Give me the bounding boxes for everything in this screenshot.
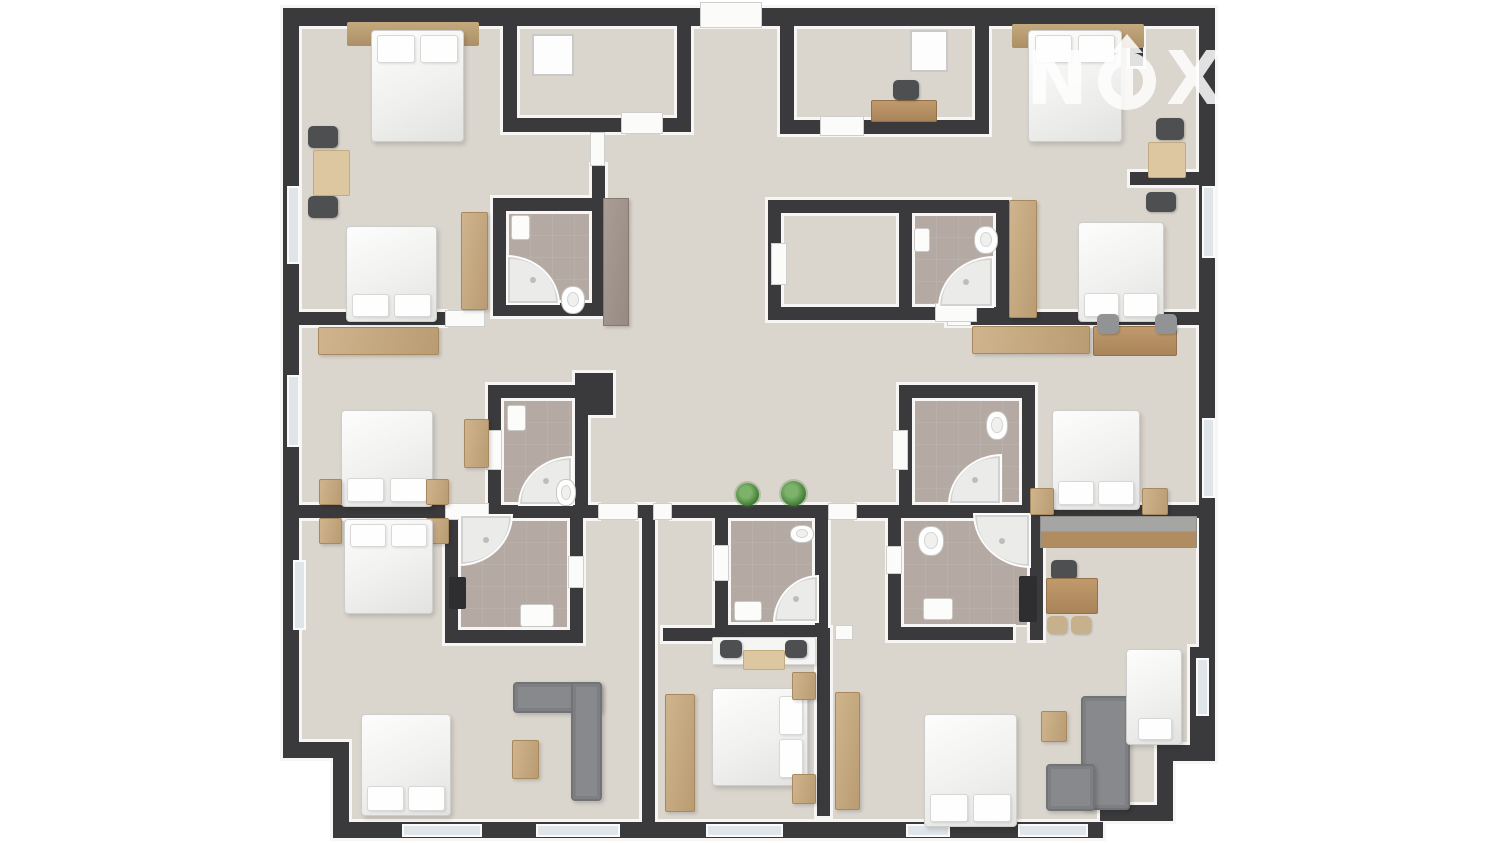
- door-opening: [653, 503, 672, 520]
- wall: [899, 385, 1035, 398]
- appliance: [449, 577, 466, 609]
- bed: [346, 226, 437, 322]
- wall: [817, 628, 830, 816]
- nightstand: [426, 479, 449, 505]
- wall: [888, 627, 1013, 640]
- window: [1202, 186, 1215, 258]
- wall: [488, 385, 588, 398]
- mat: [532, 34, 574, 76]
- floor-plan: N X T: [0, 0, 1500, 843]
- wardrobe: [835, 692, 860, 810]
- door-opening: [892, 430, 908, 470]
- bed: [371, 30, 464, 142]
- window: [287, 186, 300, 264]
- wall: [445, 630, 583, 643]
- plant: [781, 481, 806, 506]
- window: [1202, 418, 1215, 498]
- wardrobe: [665, 694, 695, 812]
- chair-dark: [308, 126, 338, 148]
- chair-gray: [1155, 314, 1177, 334]
- toilet: [561, 286, 585, 314]
- chair-dark: [1146, 192, 1176, 212]
- arrow-stem: [1121, 51, 1133, 101]
- wardrobe: [464, 419, 489, 468]
- window: [536, 824, 620, 837]
- table: [1148, 142, 1186, 178]
- nightstand: [792, 672, 816, 700]
- wall: [493, 198, 605, 211]
- wall: [503, 8, 517, 132]
- sofa: [571, 682, 602, 801]
- chair-dark: [308, 196, 338, 218]
- bed: [924, 714, 1017, 827]
- nightstand: [319, 479, 342, 505]
- door-opening: [713, 545, 729, 581]
- wall: [899, 200, 912, 320]
- wall: [996, 200, 1009, 320]
- toilet: [974, 226, 998, 254]
- chair-dark: [1051, 560, 1077, 580]
- wall: [899, 200, 1009, 213]
- window: [706, 824, 783, 837]
- compass-arrow-icon: [1098, 52, 1156, 110]
- nightstand: [1030, 488, 1054, 515]
- window: [1196, 658, 1209, 716]
- wall: [780, 8, 794, 134]
- sideboard: [318, 327, 439, 355]
- chair-gray: [1097, 314, 1119, 334]
- sofa: [1046, 764, 1095, 811]
- sink: [507, 405, 526, 431]
- door-opening: [598, 503, 638, 520]
- wall: [333, 742, 349, 832]
- wall: [592, 165, 605, 198]
- door-opening: [835, 625, 853, 640]
- next-logo-watermark: N X T: [1026, 42, 1283, 116]
- counter: [1040, 516, 1197, 548]
- window: [287, 375, 300, 447]
- appliance: [1019, 576, 1037, 622]
- bed: [1052, 410, 1140, 510]
- wall: [768, 307, 899, 320]
- sink: [923, 598, 953, 620]
- wall: [780, 120, 985, 134]
- wall: [638, 505, 653, 518]
- wall: [575, 373, 613, 415]
- wall: [672, 505, 715, 518]
- logo-letter-t: T: [1233, 42, 1283, 116]
- logo-letter-n: N: [1026, 42, 1088, 116]
- wall: [715, 625, 828, 637]
- desk-wood: [1046, 578, 1098, 614]
- chair-dark: [785, 640, 807, 658]
- desk-wood: [871, 100, 937, 122]
- wall: [493, 198, 506, 316]
- bed: [344, 519, 433, 614]
- door-opening: [886, 546, 902, 574]
- chair-tan: [1047, 616, 1067, 634]
- chair-tan: [1071, 616, 1091, 634]
- board: [910, 30, 948, 72]
- wall: [663, 628, 717, 641]
- rug: [743, 650, 785, 670]
- dresser: [603, 198, 629, 326]
- toilet: [986, 411, 1008, 440]
- wall: [1157, 745, 1173, 813]
- ctable: [512, 740, 539, 779]
- window: [293, 560, 306, 630]
- wall: [975, 8, 989, 134]
- nightstand: [792, 774, 816, 804]
- toilet: [790, 525, 814, 543]
- door-opening: [820, 116, 864, 136]
- bed: [361, 714, 451, 816]
- sink: [511, 215, 530, 240]
- wall: [503, 118, 623, 132]
- door-opening: [590, 132, 605, 166]
- window: [1018, 824, 1088, 837]
- wardrobe: [461, 212, 488, 310]
- logo-letter-x: X: [1166, 42, 1223, 116]
- toilet: [556, 479, 576, 506]
- wall: [677, 8, 691, 132]
- sink: [520, 604, 554, 627]
- bed: [1126, 649, 1182, 745]
- bed: [1078, 222, 1164, 322]
- nightstand: [1142, 488, 1168, 515]
- wardrobe: [1009, 200, 1037, 318]
- window: [402, 824, 482, 837]
- toilet: [918, 526, 944, 556]
- wall: [1022, 385, 1035, 505]
- sink: [914, 228, 930, 252]
- table: [313, 150, 350, 196]
- chair-dark: [893, 80, 919, 100]
- nightstand: [1041, 711, 1067, 742]
- door-opening: [828, 503, 857, 520]
- door-opening: [621, 112, 663, 134]
- nightstand: [319, 518, 342, 544]
- chair-dark: [720, 640, 742, 658]
- wall: [768, 200, 899, 213]
- door-opening: [700, 2, 762, 28]
- sideboard: [972, 326, 1090, 354]
- bed: [712, 688, 808, 786]
- wall: [715, 505, 828, 518]
- door-opening: [445, 310, 485, 327]
- door-opening: [771, 243, 787, 285]
- bed: [341, 410, 433, 507]
- sink: [734, 601, 762, 621]
- wall: [642, 518, 655, 822]
- plant: [736, 483, 759, 506]
- door-opening: [568, 556, 584, 588]
